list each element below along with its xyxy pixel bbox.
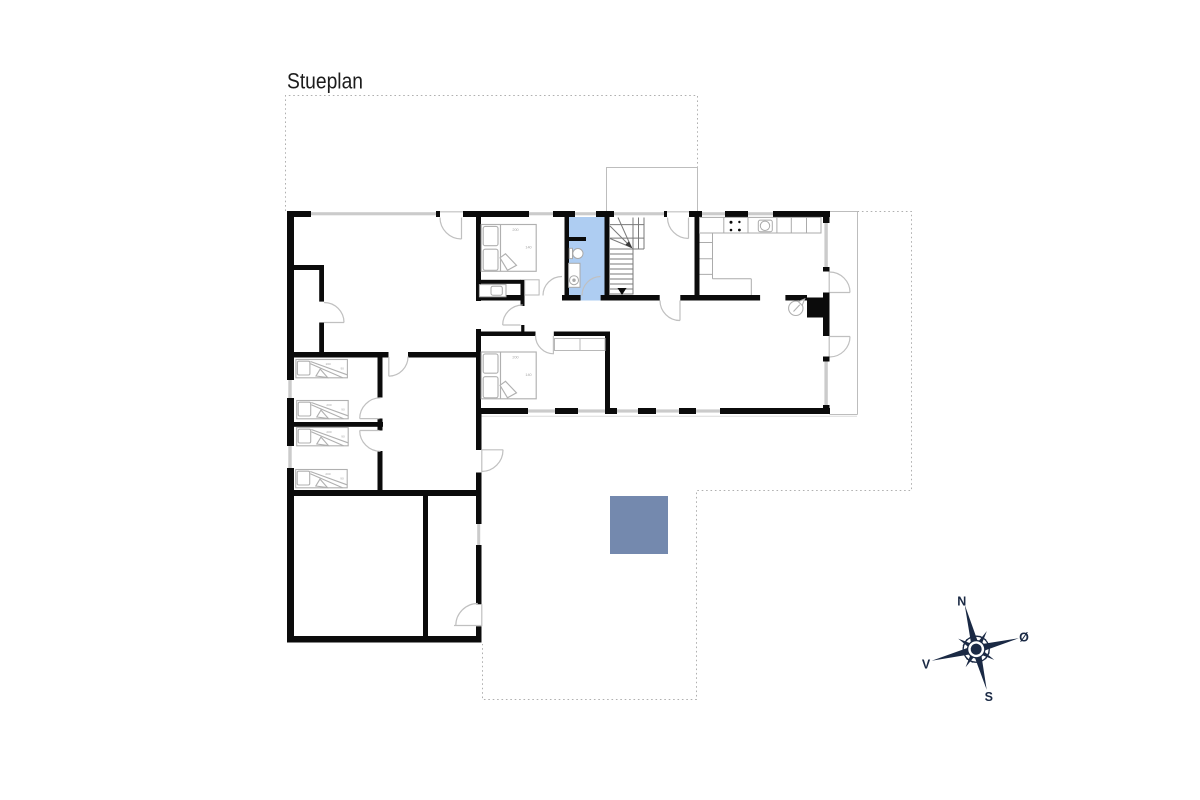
svg-text:V: V <box>922 658 931 672</box>
svg-text:Stueplan: Stueplan <box>287 69 363 94</box>
svg-text:200: 200 <box>326 403 331 407</box>
svg-text:S: S <box>985 690 993 704</box>
svg-text:200: 200 <box>512 228 518 232</box>
svg-text:200: 200 <box>326 362 331 366</box>
svg-text:140: 140 <box>525 245 531 249</box>
svg-text:140: 140 <box>525 373 531 377</box>
svg-text:90: 90 <box>341 407 345 411</box>
svg-text:Ø: Ø <box>1019 631 1029 645</box>
svg-text:N: N <box>957 595 966 609</box>
svg-text:200: 200 <box>512 355 518 359</box>
svg-text:200: 200 <box>325 472 330 476</box>
svg-text:90: 90 <box>340 366 344 370</box>
svg-text:90: 90 <box>340 476 344 480</box>
svg-text:200: 200 <box>326 430 331 434</box>
svg-text:90: 90 <box>341 434 345 438</box>
